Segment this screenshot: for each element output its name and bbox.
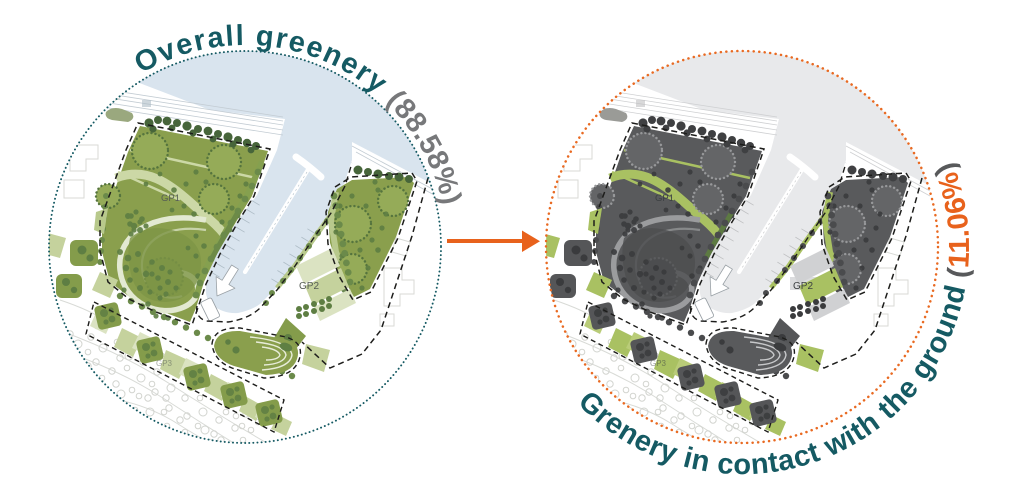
svg-text:GP2: GP2 [299, 281, 319, 292]
svg-text:GP2: GP2 [793, 281, 813, 292]
svg-text:GP1: GP1 [655, 193, 674, 204]
svg-text:GP3: GP3 [650, 359, 667, 368]
svg-text:GP1: GP1 [161, 193, 180, 204]
svg-text:GP3: GP3 [156, 359, 173, 368]
